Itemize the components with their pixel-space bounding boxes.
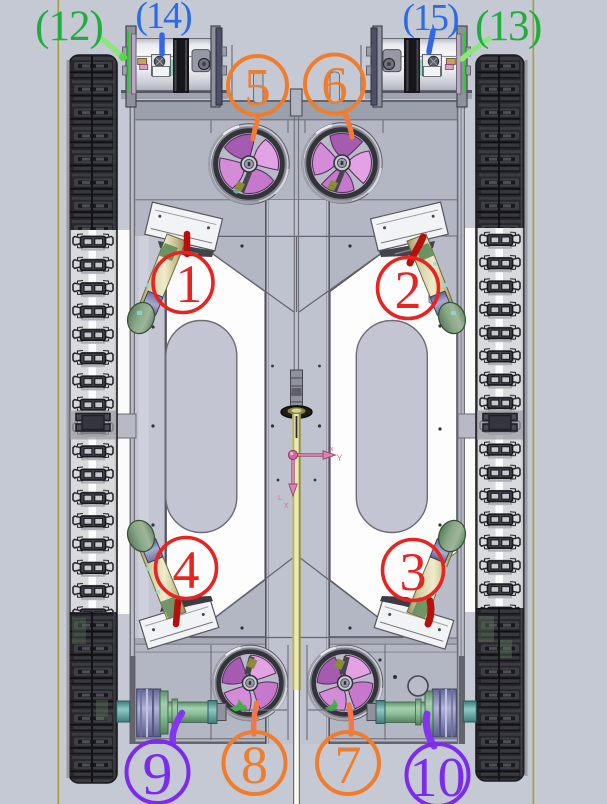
svg-text:(14): (14): [135, 0, 191, 37]
svg-text:Y: Y: [337, 453, 343, 463]
svg-text:6: 6: [321, 57, 348, 115]
svg-text:4: 4: [173, 540, 200, 600]
svg-text:x: x: [284, 500, 289, 510]
svg-text:9: 9: [143, 741, 173, 804]
svg-text:2: 2: [395, 260, 422, 320]
svg-text:L: L: [278, 495, 282, 502]
svg-text:(15): (15): [402, 0, 458, 39]
svg-text:x: x: [330, 446, 334, 453]
svg-text:7: 7: [335, 735, 362, 795]
svg-text:10: 10: [410, 747, 466, 804]
svg-text:5: 5: [244, 59, 271, 117]
svg-text:3: 3: [400, 542, 427, 602]
svg-text:8: 8: [241, 735, 268, 795]
svg-text:1: 1: [176, 254, 203, 314]
svg-text:(13): (13): [475, 3, 541, 50]
svg-text:(12): (12): [35, 3, 103, 50]
